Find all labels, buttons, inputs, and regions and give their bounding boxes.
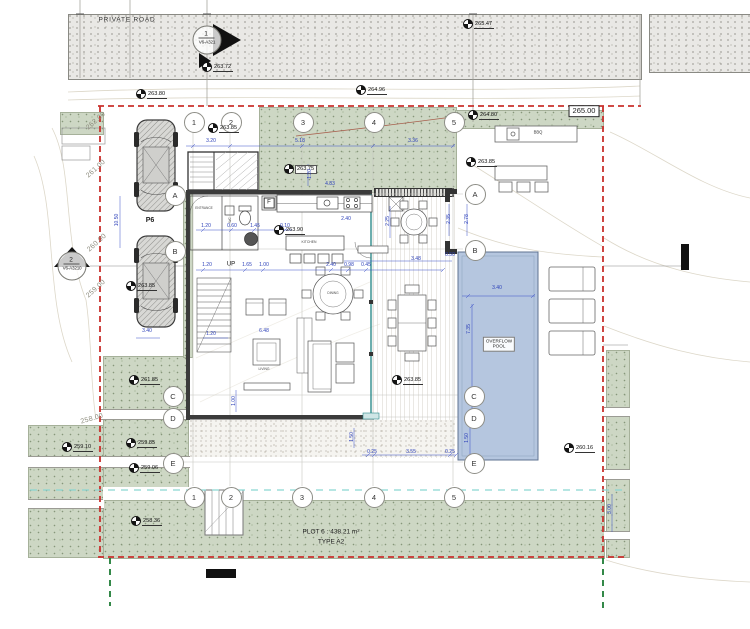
benchmark-icon <box>129 375 139 385</box>
dimension-label: 0.60 <box>227 223 237 229</box>
bbq-label: BBQ <box>534 131 543 136</box>
spot-level-value: 261.85 <box>140 377 160 385</box>
benchmark-icon <box>129 463 139 473</box>
spot-level-value: 263.85 <box>477 159 497 167</box>
spot-level: 263.85 <box>208 124 239 133</box>
dimension-label: 0.25 <box>445 449 455 455</box>
spot-level-value: 259.85 <box>137 440 157 448</box>
spot-level-value: 263.85 <box>137 283 157 291</box>
dimension-label: 1.00 <box>231 396 237 406</box>
dimension-label: 5.18 <box>295 138 305 144</box>
stair-up-label: UP <box>227 262 235 269</box>
dimension-label: 1.20 <box>201 223 211 229</box>
boundary-lines <box>30 106 641 612</box>
grid-bubble: E <box>464 453 485 474</box>
benchmark-icon <box>564 443 574 453</box>
wc-label: WC <box>229 217 233 222</box>
spot-level: 258.36 <box>131 517 162 526</box>
spot-level-value: 263.80 <box>147 91 167 99</box>
spot-level: 264.96 <box>356 86 387 95</box>
fridge-tag: F <box>264 198 275 209</box>
spot-level: 259.10 <box>62 443 93 452</box>
interior-stair <box>197 278 231 352</box>
benchmark-icon <box>356 85 366 95</box>
spot-level: 263.85 <box>466 158 497 167</box>
spot-level: 260.16 <box>564 444 595 453</box>
spot-level-value: 264.80 <box>479 112 499 120</box>
dimension-label: 3.36 <box>408 138 418 144</box>
section-sheet: V6-A3210 <box>59 265 86 270</box>
dimension-label: 6.48 <box>259 328 269 334</box>
living-dining-furniture <box>244 201 437 392</box>
dimension-label: 2.40 <box>341 216 351 222</box>
spot-level-value: 264.96 <box>367 87 387 95</box>
spot-level-value: 258.36 <box>142 518 162 526</box>
spot-level: 259.85 <box>126 439 157 448</box>
plot-title: PLOT 6 : 438.21 m² <box>303 528 360 535</box>
spot-level-value: 263.85 <box>403 377 423 385</box>
grid-bubble: 4 <box>364 487 385 508</box>
grid-bubble: 3 <box>292 487 313 508</box>
dimension-label: 1.65 <box>242 262 252 268</box>
spot-level: 261.85 <box>129 376 160 385</box>
spot-level-value: 259.06 <box>140 465 160 473</box>
dimension-label: 3.40 <box>492 285 502 291</box>
dimension-label: 1.45 <box>250 223 260 229</box>
spot-level-value: 260.16 <box>575 445 595 453</box>
parking-label: P6 <box>146 217 155 225</box>
grid-bubble: D <box>464 408 485 429</box>
spot-level: 263.85 <box>126 282 157 291</box>
spot-level: 263.85 <box>392 376 423 385</box>
dimension-label: 2.35 <box>446 214 452 224</box>
dimension-label: 7.35 <box>466 324 472 334</box>
dimension-label: 3.55 <box>406 449 416 455</box>
pool-label: OVERFLOW POOL <box>483 337 515 352</box>
benchmark-icon <box>392 375 402 385</box>
grid-bubble: D <box>163 408 184 429</box>
grid-bubble: E <box>163 453 184 474</box>
benchmark-icon <box>131 516 141 526</box>
dimension-label: 3.40 <box>142 328 152 334</box>
plot-type: TYPE A2 <box>318 538 344 545</box>
spot-level: 265.47 <box>463 20 494 29</box>
dimension-label: 1.20 <box>202 262 212 268</box>
benchmark-icon <box>284 164 294 174</box>
grid-bubble: C <box>163 386 184 407</box>
dimension-label: 1.00 <box>259 262 269 268</box>
benchmark-icon <box>468 110 478 120</box>
dimension-label: 0.98 <box>344 262 354 268</box>
section-number: 1 <box>198 31 214 39</box>
dimension-label: 10.50 <box>114 214 120 227</box>
benchmark-icon <box>466 157 476 167</box>
benchmark-icon <box>126 438 136 448</box>
entrance-label: ENTRANCE <box>195 207 213 211</box>
benchmark-icon <box>463 19 473 29</box>
spot-level: 263.72 <box>202 63 233 72</box>
benchmark-icon <box>202 62 212 72</box>
grid-bubble: 1 <box>184 112 205 133</box>
dimension-label: 1.20 <box>206 331 216 337</box>
benchmark-icon <box>208 123 218 133</box>
grid-bubble: B <box>465 240 486 261</box>
boundary-level-box: 265.00 <box>569 105 600 117</box>
dimension-label: 3.20 <box>206 138 216 144</box>
benchmark-icon <box>126 281 136 291</box>
grid-bubble: 5 <box>444 112 465 133</box>
dimension-label: 1.50 <box>464 433 470 443</box>
dimension-label: 2.25 <box>385 216 391 226</box>
spot-level-value: 265.47 <box>474 21 494 29</box>
spot-level-value: 263.72 <box>213 64 233 72</box>
dimension-label: 1.50 <box>349 432 355 442</box>
grid-bubble: 4 <box>364 112 385 133</box>
section-marker-left: 2 V6-A3210 <box>58 252 87 281</box>
grid-bubble: 2 <box>221 487 242 508</box>
section-number: 2 <box>63 257 79 265</box>
dimension-label: 2.40 <box>326 262 336 268</box>
kitchen-label: KITCHEN <box>302 241 317 245</box>
dimension-label: 2.78 <box>464 214 470 224</box>
spot-level: 263.80 <box>136 90 167 99</box>
grid-bubble: 5 <box>444 487 465 508</box>
section-marker-top: 1 V6-A321 <box>193 26 222 55</box>
section-sheet: V6-A321 <box>194 39 221 44</box>
grid-bubble: B <box>165 241 186 262</box>
site-plan-drawing: 1 V6-A321 2 V6-A3210 1234512345ABCDEABCD… <box>0 0 750 629</box>
benchmark-icon <box>62 442 72 452</box>
dimension-label: 0.10 <box>280 223 290 229</box>
living-label: LIVING <box>258 368 269 372</box>
dimension-label: 0.25 <box>367 449 377 455</box>
benchmark-icon <box>136 89 146 99</box>
dining-label: DINING <box>327 292 338 296</box>
dimension-label: 0.50 <box>445 252 455 258</box>
grid-bubble: 3 <box>293 112 314 133</box>
dimension-label: 1.20 <box>307 169 313 179</box>
spot-level-value: 263.85 <box>219 125 239 133</box>
dimension-label: 3.48 <box>411 256 421 262</box>
road-label: PRIVATE ROAD <box>98 16 155 23</box>
dimension-label: 0.45 <box>361 262 371 268</box>
spot-level: 264.80 <box>468 111 499 120</box>
grid-bubble: A <box>465 184 486 205</box>
spot-level-value: 259.10 <box>73 444 93 452</box>
dimension-label: 4.83 <box>325 181 335 187</box>
grid-bubble: C <box>464 386 485 407</box>
dimension-label: 3.00 <box>607 504 613 514</box>
grid-bubble: 1 <box>184 487 205 508</box>
spot-level: 259.06 <box>129 464 160 473</box>
grid-bubble: A <box>165 185 186 206</box>
